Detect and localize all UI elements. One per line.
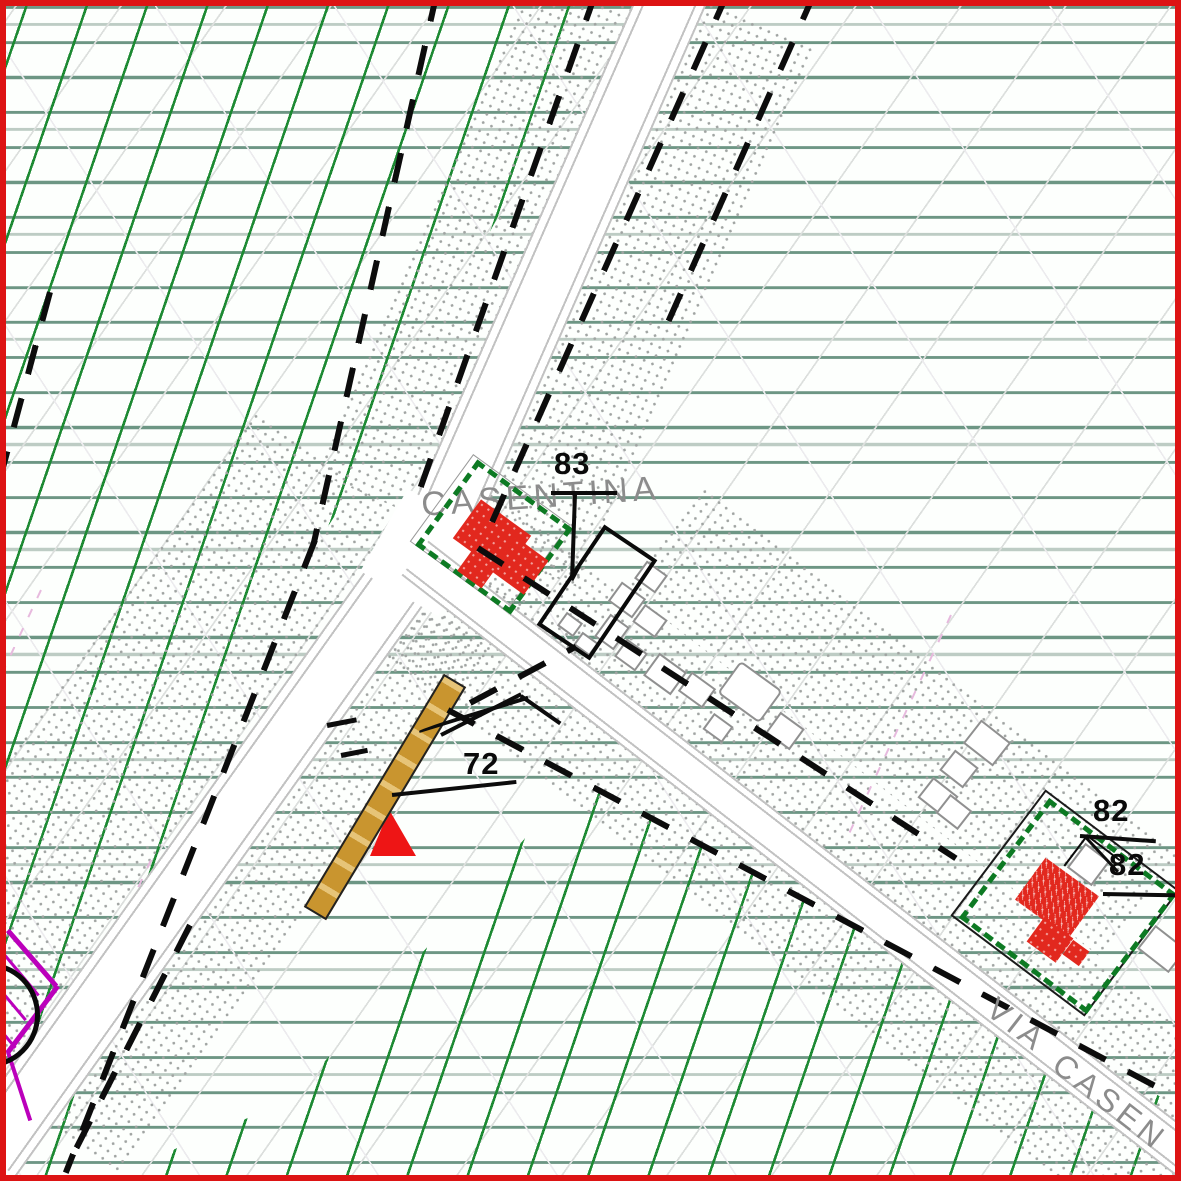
leader-83-crossbar <box>551 491 617 495</box>
label-83: 83 <box>554 446 590 482</box>
zoning-map-canvas[interactable]: CASENTINA 83 72 <box>0 0 1181 1181</box>
label-72: 72 <box>463 746 499 782</box>
label-82-upper: 82 <box>1093 793 1129 829</box>
label-82-lower: 82 <box>1109 847 1145 883</box>
